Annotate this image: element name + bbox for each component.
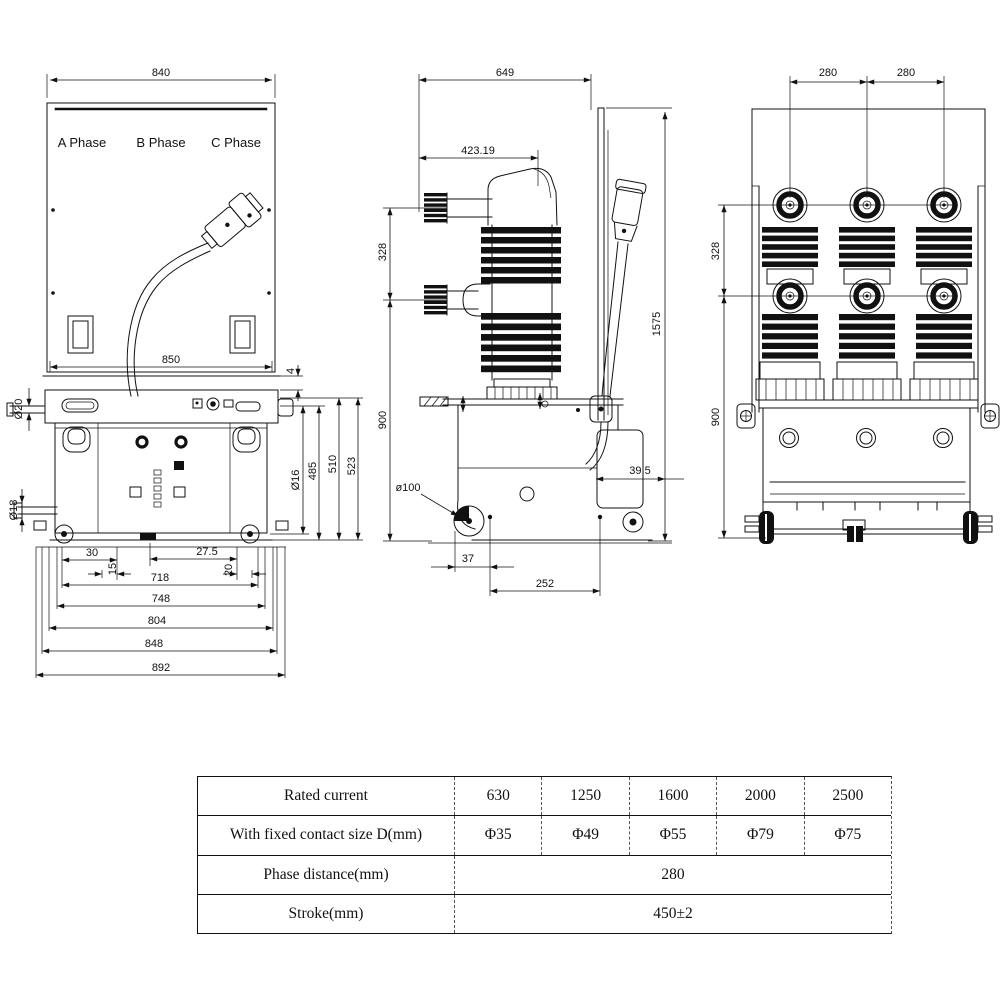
- front-view: 840 A Phase B Phase C Phase: [7, 67, 363, 678]
- row-label: Stroke(mm): [198, 895, 454, 933]
- dim-15: 15: [107, 563, 119, 575]
- dim-423-19: 423.19: [461, 145, 495, 157]
- dim-649: 649: [496, 67, 514, 79]
- dim-892: 892: [152, 662, 170, 674]
- side-pole: [424, 168, 561, 399]
- dim-748: 748: [152, 593, 170, 605]
- stroke-value: 450±2: [454, 895, 891, 933]
- dim-20: 20: [223, 564, 235, 576]
- rear-pole-c: [910, 188, 978, 400]
- contact-size-value: Φ55: [629, 816, 716, 854]
- label-a-phase: A Phase: [58, 135, 106, 150]
- dim-1575: 1575: [651, 312, 663, 336]
- dim-718: 718: [151, 572, 169, 584]
- table-row-rated-current: Rated current 630 1250 1600 2000 2500: [198, 777, 891, 815]
- dim-dia20: Ø20: [13, 399, 25, 420]
- row-label: Rated current: [198, 777, 454, 815]
- front-plug: [196, 188, 266, 254]
- dim-848: 848: [145, 638, 163, 650]
- side-view: 649 423.19 328 900: [377, 67, 684, 596]
- engineering-drawing: 840 A Phase B Phase C Phase: [0, 0, 1000, 760]
- label-c-phase: C Phase: [211, 135, 261, 150]
- table-row-contact-size: With fixed contact size D(mm) Φ35 Φ49 Φ5…: [198, 815, 891, 854]
- side-plate-cable: [586, 108, 647, 470]
- dim-850: 850: [162, 354, 180, 366]
- rated-current-value: 2500: [804, 777, 891, 815]
- rear-body: [737, 400, 999, 544]
- dim-523: 523: [346, 457, 358, 475]
- dim-510: 510: [327, 455, 339, 473]
- row-label: Phase distance(mm): [198, 856, 454, 894]
- rated-current-value: 1600: [629, 777, 716, 815]
- row-label: With fixed contact size D(mm): [198, 816, 454, 854]
- front-cable: [127, 188, 267, 396]
- spec-table: Rated current 630 1250 1600 2000 2500 Wi…: [197, 776, 892, 934]
- dim-900-side: 900: [377, 411, 389, 429]
- table-row-stroke: Stroke(mm) 450±2: [198, 894, 891, 933]
- dim-280-a: 280: [819, 67, 837, 79]
- front-window-right: [230, 316, 255, 353]
- dim-328-rear: 328: [710, 242, 722, 260]
- rear-view: 280 280: [710, 67, 999, 544]
- dim-dia100: ø100: [395, 482, 420, 494]
- label-b-phase: B Phase: [136, 135, 185, 150]
- dim-900-rear: 900: [710, 408, 722, 426]
- side-plug: [607, 179, 647, 242]
- dim-840: 840: [152, 67, 170, 79]
- dim-4: 4: [285, 368, 297, 374]
- dim-804: 804: [148, 615, 166, 627]
- dim-39-5: 39.5: [629, 465, 650, 477]
- dim-dia16: Ø16: [290, 470, 302, 491]
- contact-size-value: Φ79: [716, 816, 803, 854]
- rated-current-value: 1250: [541, 777, 628, 815]
- dim-280-b: 280: [897, 67, 915, 79]
- phase-distance-value: 280: [454, 856, 891, 894]
- rear-pole-a: [756, 188, 824, 400]
- rated-current-value: 2000: [716, 777, 803, 815]
- circuit-breaker-drawing-page: 840 A Phase B Phase C Phase: [0, 0, 1000, 1000]
- contact-size-value: Φ49: [541, 816, 628, 854]
- dim-485: 485: [307, 462, 319, 480]
- dim-328-side: 328: [377, 243, 389, 261]
- contact-size-value: Φ35: [454, 816, 541, 854]
- dim-27-5: 27.5: [196, 546, 217, 558]
- front-window-left: [68, 316, 93, 353]
- rated-current-value: 630: [454, 777, 541, 815]
- rear-pole-b: [833, 188, 901, 400]
- dim-37: 37: [462, 553, 474, 565]
- dim-dia18: Ø18: [8, 500, 20, 521]
- table-row-phase-distance: Phase distance(mm) 280: [198, 855, 891, 894]
- dim-30: 30: [86, 547, 98, 559]
- dim-252: 252: [536, 578, 554, 590]
- contact-size-value: Φ75: [804, 816, 891, 854]
